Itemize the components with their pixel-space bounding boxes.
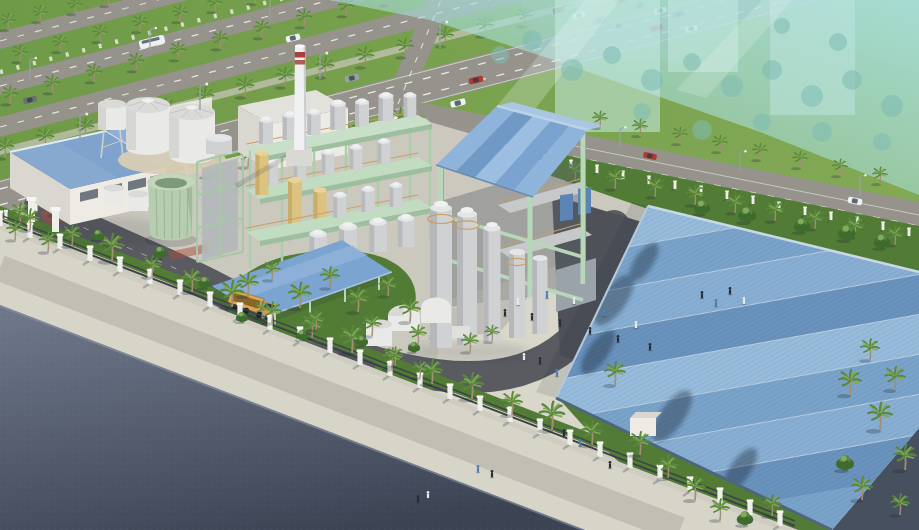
plant-campus-rendering [0,0,919,530]
cooling-tower [145,174,197,248]
rendered-scene [0,0,919,530]
column [507,249,527,338]
storage-tank [126,97,170,155]
column [455,207,480,345]
column [428,201,455,348]
storage-tank [169,104,215,164]
column [484,222,501,342]
column [533,255,548,334]
